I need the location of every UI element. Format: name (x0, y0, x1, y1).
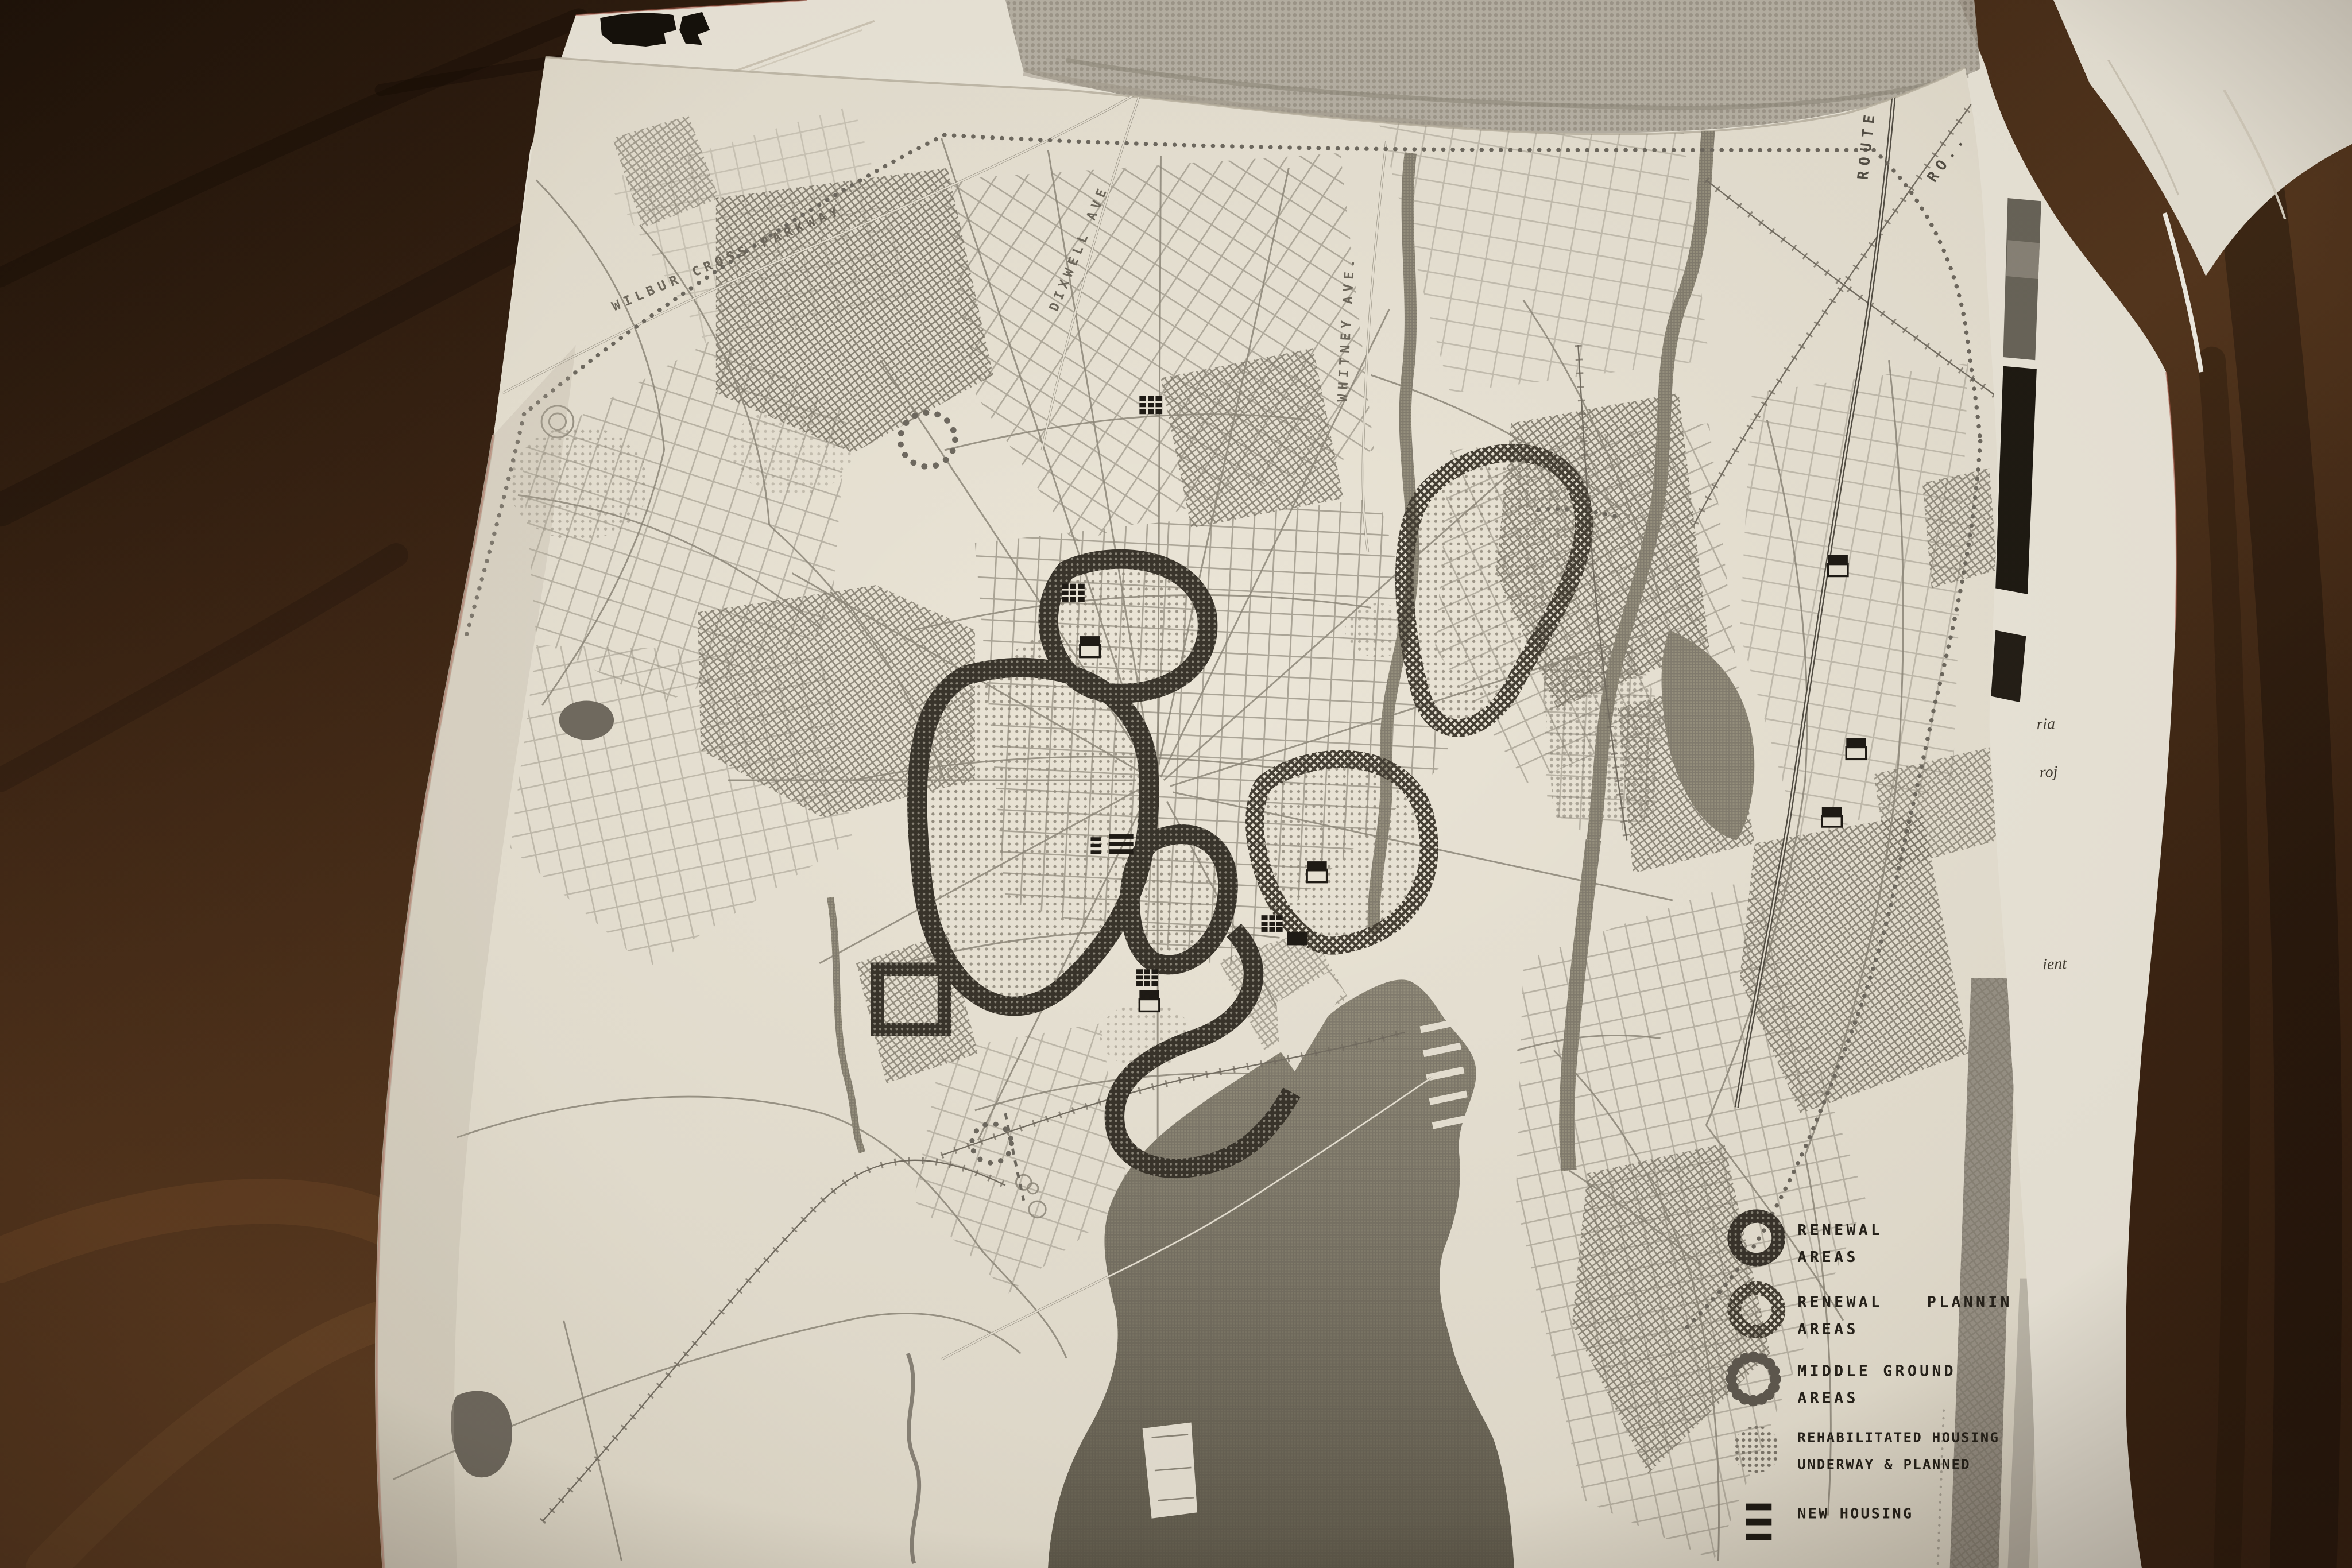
photographed-map-scene: ria roj ient (0, 0, 2352, 1568)
photo-vignette (0, 0, 2352, 1568)
